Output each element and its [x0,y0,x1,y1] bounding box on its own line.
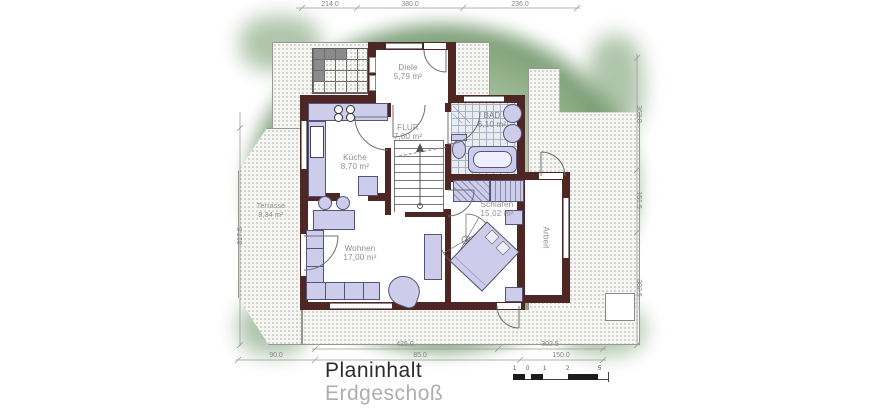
dimension-label: 302.5 [634,273,642,303]
scale-label: 1 [543,366,546,372]
room-name: BAD [483,111,500,120]
room-name: FLUR [397,123,419,132]
stair-walk-line [394,143,446,209]
room-name: Terrasse [257,203,285,210]
dimension-lines [235,5,640,363]
plan-title: Planinhalt [325,359,422,383]
room-area: 8,34 m² [258,212,283,219]
room-label-diele: Diele 5,79 m² [380,63,436,81]
room-name: Wohnen [345,244,376,253]
scale-end-tick [608,372,609,382]
room-name: Diele [398,63,417,72]
room-label-kueche: Küche 8,70 m² [325,153,385,171]
scale-segment [513,374,525,380]
scale-label: 2 [566,366,569,372]
scale-label: 1 [513,366,516,372]
dimension-label: 363.0 [634,99,642,129]
scale-bar: 1 0 1 2 5 [513,366,613,384]
scale-segment [568,374,598,380]
dimension-label: 90.0 [256,352,296,360]
plan-subtitle: Erdgeschoß [325,382,443,406]
room-area: 17,00 m² [343,253,376,262]
room-label-terrasse: Terrasse 8,34 m² [240,202,302,220]
dimension-label: 380.0 [390,1,430,9]
room-area: 8,70 m² [341,162,370,171]
scale-segment [531,374,543,380]
room-area: 15,02 m² [480,209,513,218]
room-name: Arbeit [542,226,551,248]
room-area: 5,79 m² [394,72,423,81]
scale-label: 5 [598,366,601,372]
dimension-label: 150.0 [541,352,581,360]
door-arcs [304,50,565,328]
bed [450,222,519,291]
door-arc [497,306,519,328]
dimension-label: 317.5 [237,221,245,251]
room-label-arbeit: Arbeit [542,208,551,268]
dimension-label: 236.0 [500,1,540,9]
room-area: 7,60 m² [394,132,423,141]
dimension-label: 214.0 [310,1,350,9]
room-area: 6,10 m² [478,120,507,129]
room-name: Küche [343,153,367,162]
room-label-bad: BAD 6,10 m² [468,111,516,129]
room-name: Schlafen [481,200,514,209]
scale-label: 0 [526,366,529,372]
dimension-label: 302.5 [530,341,570,349]
dimension-label: 425.0 [385,341,425,349]
door-arc [541,152,565,176]
floor-plan-canvas: Diele 5,79 m² FLUR 7,60 m² Küche 8,70 m²… [0,0,870,420]
room-label-flur: FLUR 7,60 m² [383,123,433,141]
dimension-label: 151.5 [634,185,642,215]
room-label-wohnen: Wohnen 17,00 m² [330,244,390,262]
stair-arrow [416,143,424,152]
room-label-schlafen: Schlafen 15,02 m² [462,200,532,218]
